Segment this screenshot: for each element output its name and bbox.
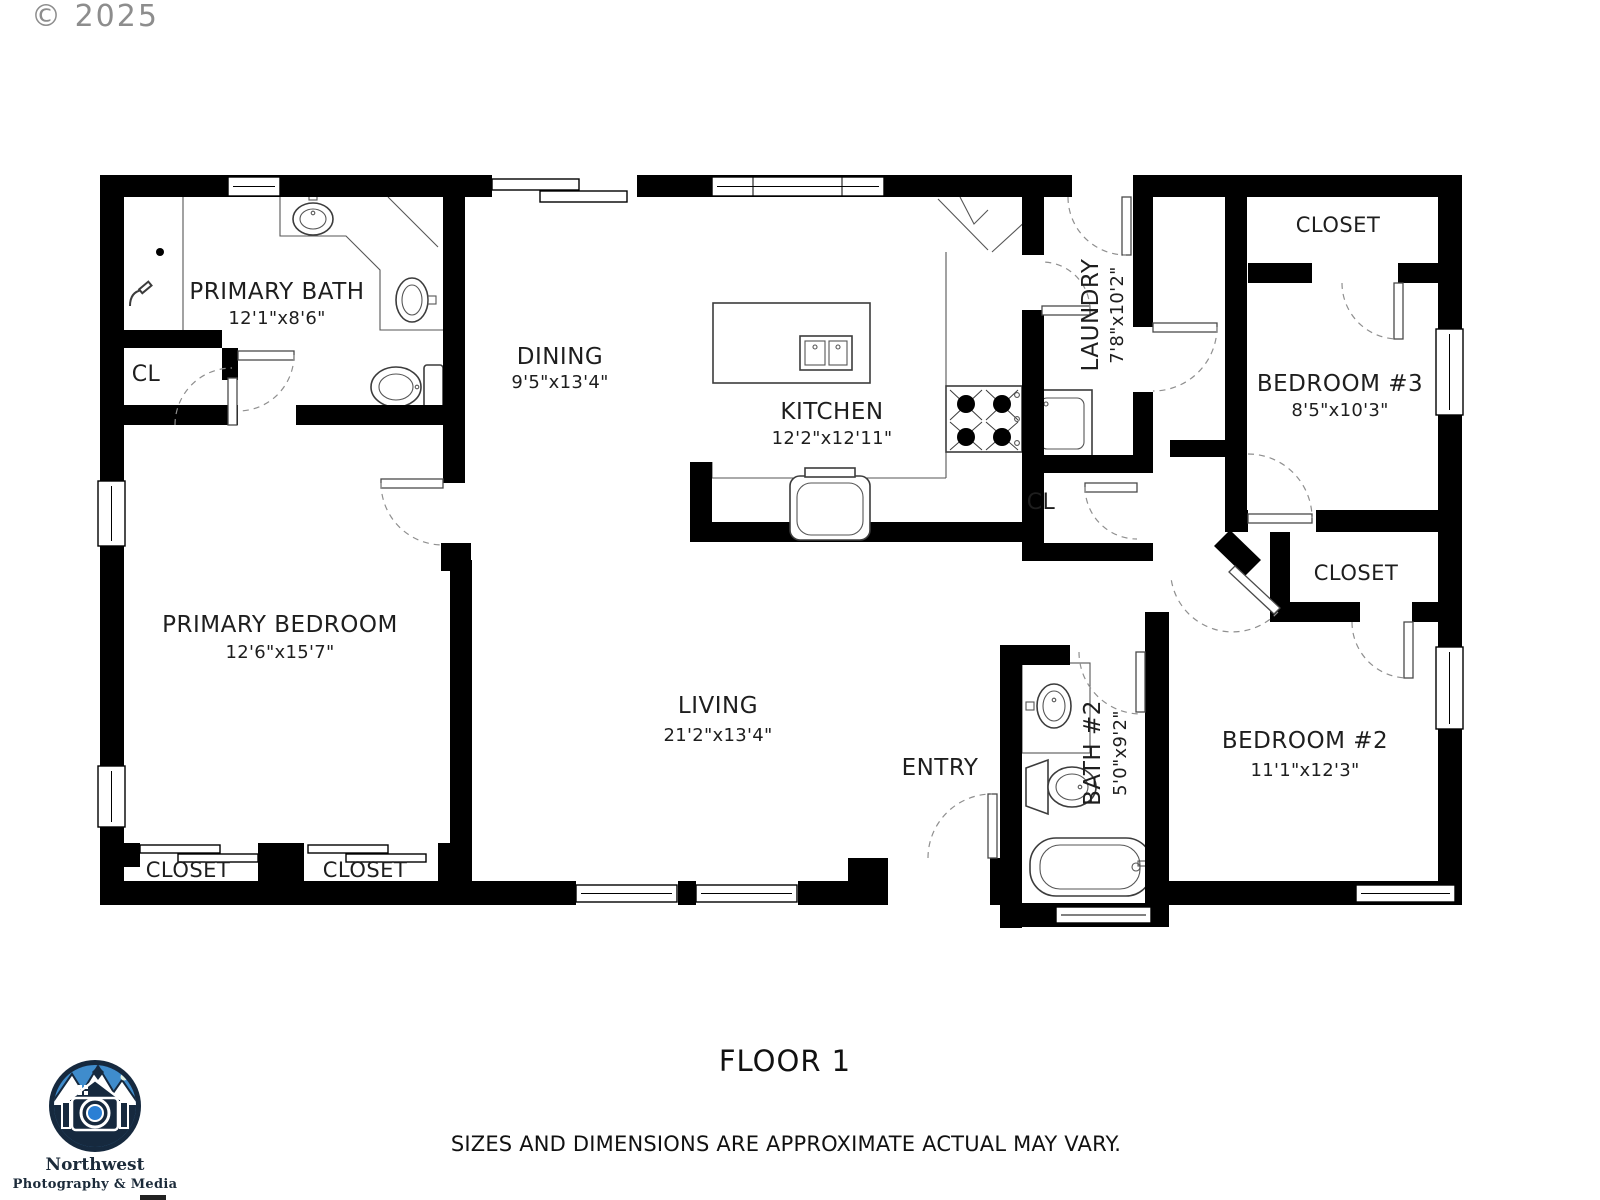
window-bedroom2-right <box>1436 647 1463 729</box>
room-label-primary-bath: PRIMARY BATH <box>189 279 364 305</box>
door-entry <box>928 794 997 858</box>
window-left-upper <box>98 481 125 546</box>
shower-drain <box>156 248 164 256</box>
door-hall-laundry <box>1153 323 1217 391</box>
dishwasher-icon <box>790 468 870 540</box>
bathtub-icon <box>1030 838 1152 896</box>
door-bedroom3 <box>1248 454 1312 523</box>
window-bath2-bottom <box>1056 907 1151 923</box>
logo: Northwest Photography & Media <box>13 1060 178 1200</box>
shower-head-icon <box>130 282 152 306</box>
room-dims-living: 21'2"x13'4" <box>663 725 772 746</box>
room-dims-dining: 9'5"x13'4" <box>511 372 608 393</box>
window-living-2 <box>696 885 797 902</box>
bath-sink-icon <box>293 193 333 235</box>
window-left-lower <box>98 766 125 827</box>
room-label-laundry: LAUNDRY <box>1078 258 1104 371</box>
stove-icon <box>946 386 1022 452</box>
room-label-bath-closet: CL <box>132 362 161 387</box>
corner-cabinet <box>938 199 988 250</box>
floor-title: FLOOR 1 <box>719 1044 851 1078</box>
room-dims-primary-bedroom: 12'6"x15'7" <box>225 642 334 663</box>
bath2-sink-icon <box>1026 684 1071 728</box>
logo-name: Northwest <box>46 1155 145 1175</box>
room-dims-bedroom2: 11'1"x12'3" <box>1250 760 1359 781</box>
room-label-living: LIVING <box>678 693 758 719</box>
door-hall-closet <box>1085 483 1137 539</box>
room-dims-bedroom3: 8'5"x10'3" <box>1291 400 1388 421</box>
bath-sink2-icon <box>396 278 436 322</box>
room-label-kitchen: KITCHEN <box>780 399 883 425</box>
floor-plan-page: © 2025 PRIMARY BATH 12'1"x8'6" CL DINING… <box>0 0 1600 1200</box>
window-kitchen-top <box>712 177 884 196</box>
window-living-1 <box>576 885 677 902</box>
room-label-entry: ENTRY <box>902 755 979 781</box>
disclaimer-text: SIZES AND DIMENSIONS ARE APPROXIMATE ACT… <box>451 1132 1121 1156</box>
room-label-bedroom3: BEDROOM #3 <box>1257 371 1423 397</box>
window-bath-top <box>228 177 280 196</box>
room-dims-kitchen: 12'2"x12'11" <box>772 428 893 449</box>
door-laundry-exterior <box>1068 197 1131 255</box>
room-dims-primary-bath: 12'1"x8'6" <box>228 308 325 329</box>
window-bedroom3-right <box>1436 329 1463 415</box>
room-label-primary-closet-right: CLOSET <box>323 858 408 882</box>
room-label-bedroom3-closet: CLOSET <box>1296 213 1381 237</box>
door-bedroom2 <box>1171 566 1280 632</box>
sliding-door-dining <box>492 179 627 202</box>
room-label-bath2: BATH #2 <box>1080 700 1106 806</box>
room-label-primary-closet-left: CLOSET <box>146 858 231 882</box>
door-bedroom2-closet <box>1352 622 1413 678</box>
room-label-primary-bedroom: PRIMARY BEDROOM <box>162 612 398 638</box>
room-dims-laundry: 7'8"x10'2" <box>1107 266 1128 363</box>
crop-mark <box>140 1195 166 1200</box>
room-label-dining: DINING <box>517 344 604 370</box>
room-label-bedroom2: BEDROOM #2 <box>1222 728 1388 754</box>
toilet-icon <box>371 365 443 409</box>
watermark-text: © 2025 <box>31 0 159 34</box>
room-dims-bath2: 5'0"x9'2" <box>1110 710 1131 796</box>
room-label-hall-closet: CL <box>1027 490 1056 515</box>
room-label-bedroom2-closet: CLOSET <box>1314 561 1399 585</box>
door-primary-bath <box>238 351 294 411</box>
door-primary-bedroom <box>381 479 443 545</box>
window-bedroom2-bottom <box>1356 885 1455 902</box>
logo-tagline: Photography & Media <box>13 1177 178 1192</box>
door-bedroom3-closet <box>1342 283 1403 339</box>
floor-plan-svg: © 2025 PRIMARY BATH 12'1"x8'6" CL DINING… <box>0 0 1600 1200</box>
